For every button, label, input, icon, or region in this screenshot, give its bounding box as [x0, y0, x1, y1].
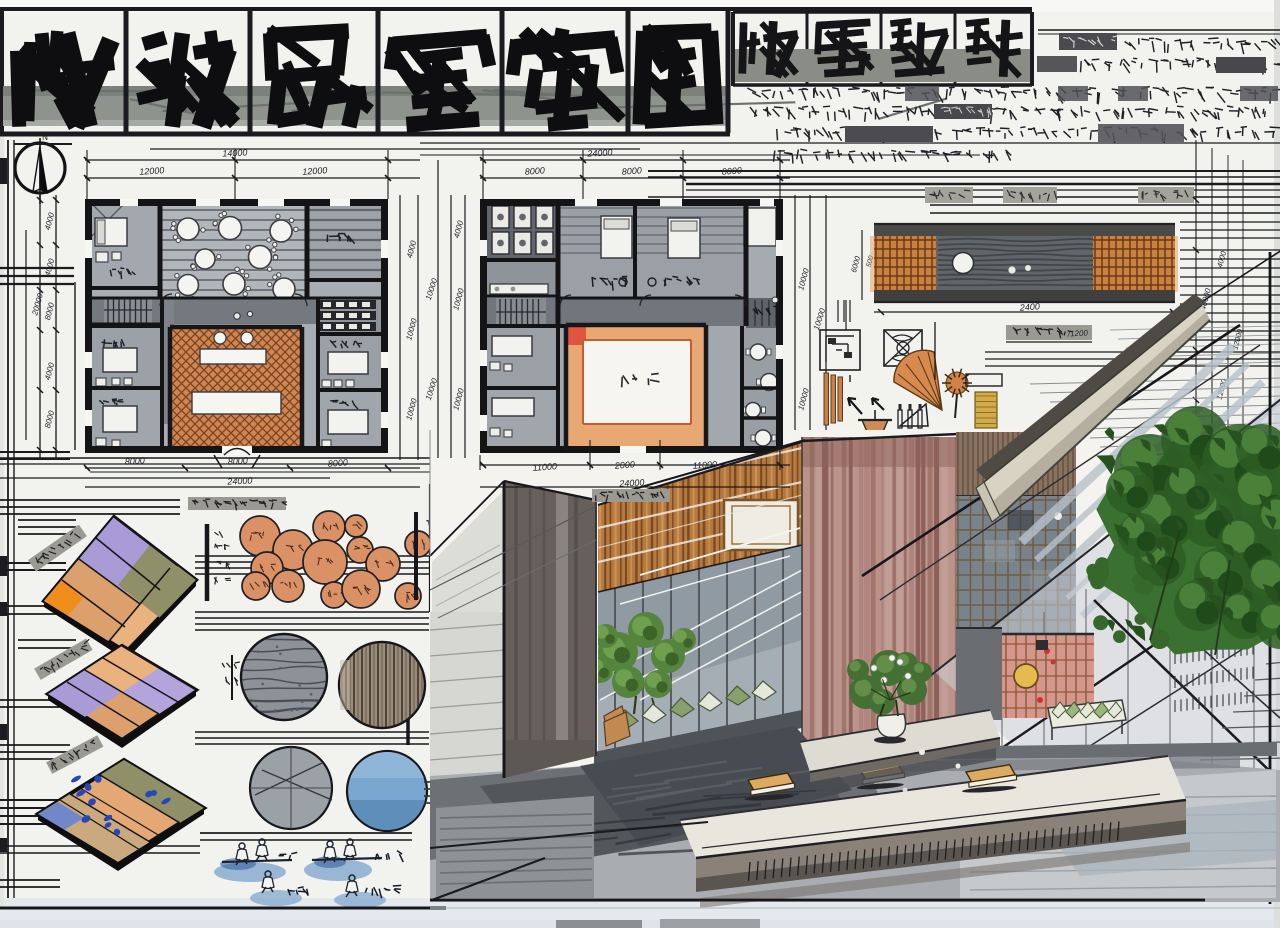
svg-text:8000: 8000: [721, 165, 742, 176]
svg-text:8000: 8000: [524, 165, 545, 176]
svg-text:/1200: /1200: [1067, 328, 1089, 338]
svg-text:24000: 24000: [226, 475, 253, 486]
svg-text:8000: 8000: [227, 455, 248, 466]
svg-text:8000: 8000: [124, 455, 145, 466]
svg-text:24000: 24000: [618, 477, 645, 488]
svg-text:N: N: [42, 133, 48, 142]
svg-text:2400: 2400: [1018, 301, 1040, 312]
svg-text:11000: 11000: [532, 461, 557, 473]
svg-text:12000: 12000: [302, 165, 328, 177]
svg-text:8000: 8000: [621, 165, 642, 176]
svg-text:2000: 2000: [613, 459, 635, 470]
svg-text:8000: 8000: [327, 457, 348, 468]
svg-text:12000: 12000: [139, 165, 165, 177]
svg-text:11000: 11000: [692, 459, 717, 471]
